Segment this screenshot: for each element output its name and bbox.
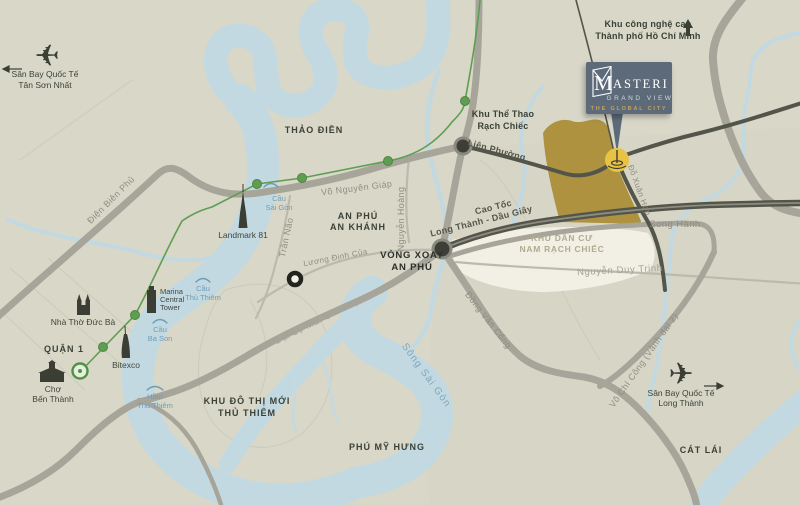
label-cho-ben-thanh-1: Chợ xyxy=(45,384,62,394)
label-cau-sai-gon-1: Cầu xyxy=(272,194,286,203)
label-vong-xoay-1: VÒNG XOAY xyxy=(380,249,444,261)
label-nha-tho-duc-ba: Nhà Thờ Đức Bà xyxy=(51,317,116,327)
label-cau-ba-son-1: Cầu xyxy=(153,325,167,334)
label-nam-rach-chiec-1: KHU DÂN CƯ xyxy=(531,232,593,243)
masteri-logo[interactable]: M ASTERI GRAND VIEW THE GLOBAL CITY xyxy=(586,62,673,114)
label-tan-son-nhat-2: Tân Sơn Nhất xyxy=(18,80,72,90)
logo-brand-rest: ASTERI xyxy=(613,77,669,91)
label-nam-rach-chiec-2: NAM RẠCH CHIẾC xyxy=(520,244,605,254)
roundabout-node xyxy=(289,273,301,285)
location-map: ✈ ✈ THẢO ĐIỀN AN PHÚ AN KHÁNH VÒNG XOAY … xyxy=(0,0,800,505)
label-ham-thu-thiem-2: Thủ Thiêm xyxy=(137,401,173,410)
label-the-thao-2: Rạch Chiếc xyxy=(477,121,528,131)
label-thu-thiem-2: THỦ THIÊM xyxy=(218,407,276,418)
logo-brand-sub: GRAND VIEW xyxy=(607,95,674,102)
label-tan-son-nhat-1: Sân Bay Quốc Tế xyxy=(12,69,79,79)
label-cau-thu-thiem-1: Cầu xyxy=(196,284,210,293)
label-ham-thu-thiem-1: Hầm xyxy=(147,392,163,401)
metro-terminal-icon xyxy=(73,364,88,379)
label-song-hanh: Song Hành xyxy=(649,219,700,230)
logo-brand-initial: M xyxy=(594,71,613,95)
label-cong-nghe-cao-1: Khu công nghệ cao xyxy=(605,19,692,29)
label-cau-thu-thiem-2: Thủ Thiêm xyxy=(185,293,221,302)
logo-brand-tagline: THE GLOBAL CITY xyxy=(591,106,668,112)
label-the-thao-1: Khu Thể Thao xyxy=(472,109,535,119)
label-cau-ba-son-2: Ba Son xyxy=(148,334,173,343)
label-quan-1: QUẬN 1 xyxy=(44,343,84,354)
label-an-phu-1: AN PHÚ xyxy=(338,210,379,221)
label-cong-nghe-cao-2: Thành phố Hồ Chí Minh xyxy=(595,31,700,41)
label-bitexco: Bitexco xyxy=(112,360,140,370)
airplane-icon-long-thanh: ✈ xyxy=(668,357,693,392)
metro-station-dot xyxy=(131,311,140,320)
metro-station-dot xyxy=(99,343,108,352)
label-long-thanh-1: Sân Bay Quốc Tế xyxy=(648,388,715,398)
label-vong-xoay-2: AN PHÚ xyxy=(391,261,432,273)
label-marina-3: Tower xyxy=(160,303,181,312)
label-cau-sai-gon-2: Sài Gòn xyxy=(265,203,292,212)
label-thao-dien: THẢO ĐIỀN xyxy=(285,124,344,135)
label-cat-lai: CÁT LÁI xyxy=(680,445,723,455)
label-phu-my-hung: PHÚ MỸ HƯNG xyxy=(349,441,425,452)
label-an-phu-2: AN KHÁNH xyxy=(330,222,386,232)
label-long-thanh-2: Long Thành xyxy=(658,398,703,408)
label-thu-thiem-1: KHU ĐÔ THỊ MỚI xyxy=(204,395,291,406)
project-pin-icon[interactable] xyxy=(605,148,629,172)
marina-tower-icon xyxy=(147,286,156,313)
label-cho-ben-thanh-2: Bến Thành xyxy=(32,394,74,404)
label-landmark81: Landmark 81 xyxy=(218,230,268,240)
metro-station-dot xyxy=(384,157,393,166)
label-nguyen-hoang: Nguyễn Hoàng xyxy=(396,187,406,252)
metro-station-dot xyxy=(253,180,262,189)
metro-station-dot xyxy=(461,97,470,106)
metro-station-dot xyxy=(298,174,307,183)
